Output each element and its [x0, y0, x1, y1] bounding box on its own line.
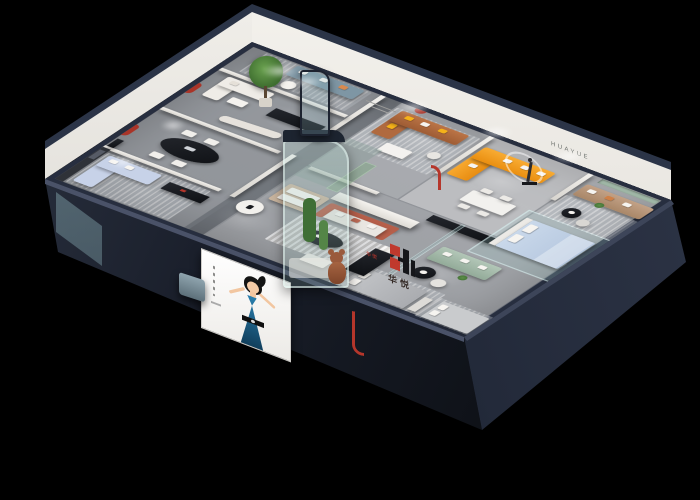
promo-vertical-text-marks: [213, 266, 215, 297]
wall-light: [480, 126, 514, 139]
wall-light: [292, 76, 322, 88]
sculpture-figure: [524, 158, 534, 188]
red-floor-lamp: [352, 311, 364, 356]
tree-pot: [259, 98, 272, 107]
hostess-arm-right: [258, 293, 275, 310]
cactus-plant: [303, 198, 316, 242]
render-stage: 华悦 华悦 HUAYUE: [0, 0, 700, 500]
promo-signature-mark: [211, 301, 221, 307]
wall-light: [552, 150, 586, 163]
wall-light: [108, 156, 138, 168]
wall-light: [396, 100, 432, 114]
red-curve-lamp: [431, 165, 441, 190]
hostess-arm-left: [229, 287, 246, 294]
cactus-plant: [319, 220, 328, 250]
wall-light: [160, 120, 186, 131]
teddy-bear-statue: [326, 252, 348, 288]
